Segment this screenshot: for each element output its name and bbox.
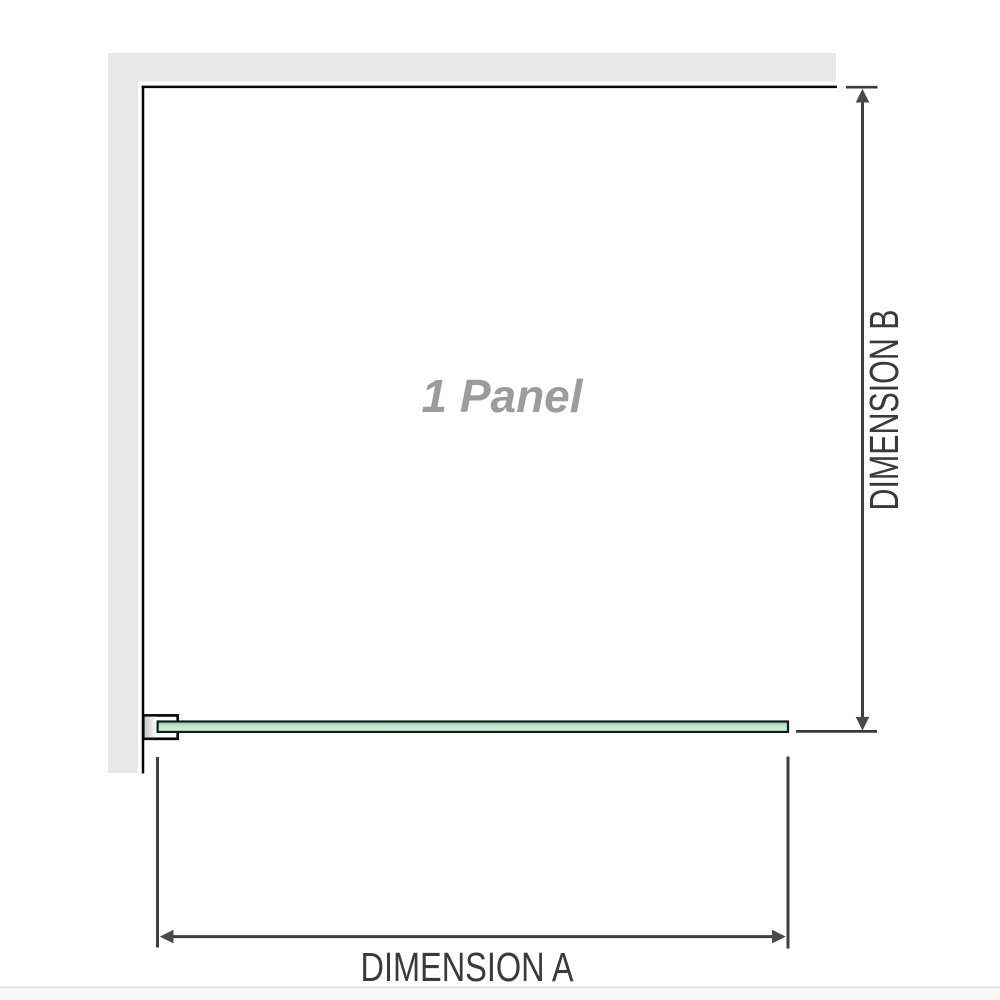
svg-text:DIMENSION A: DIMENSION A — [361, 944, 574, 990]
svg-text:1 Panel: 1 Panel — [421, 370, 583, 422]
svg-text:DIMENSION B: DIMENSION B — [861, 310, 907, 511]
